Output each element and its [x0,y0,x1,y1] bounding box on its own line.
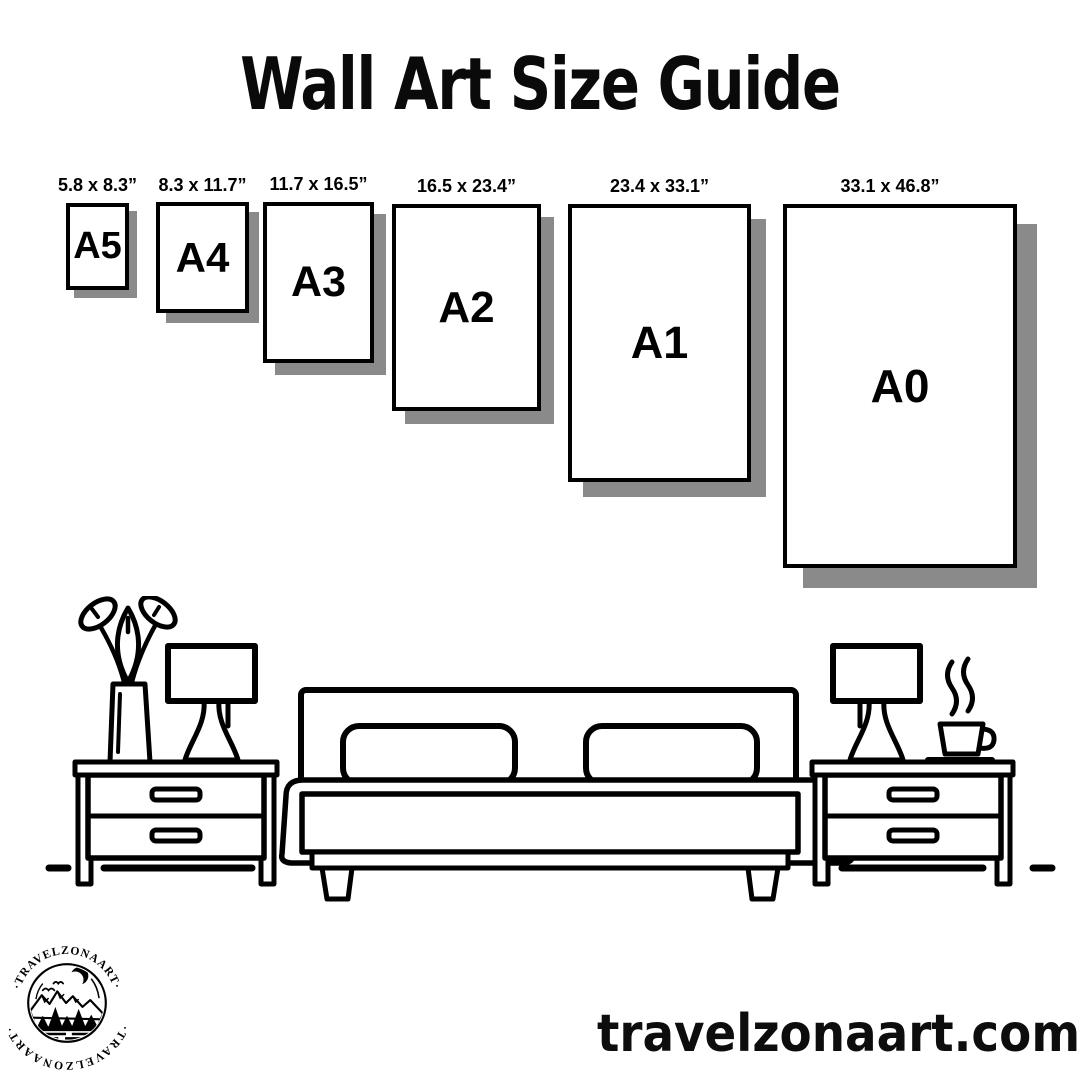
size-code-a5: A5 [73,225,122,268]
paper-size-box-a2: A2 [392,204,541,411]
paper-size-box-a3: A3 [263,202,374,363]
paper-size-box-a0: A0 [783,204,1017,568]
size-code-a4: A4 [176,234,230,282]
table-lamp-icon [168,646,255,760]
paper-size-box-a4: A4 [156,202,249,313]
page-title: Wall Art Size Guide [108,42,972,126]
wall-art-size-guide-infographic: Wall Art Size Guide 5.8 x 8.3” 8.3 x 11.… [0,0,1080,1080]
size-code-a1: A1 [631,317,689,369]
size-code-a0: A0 [871,359,930,413]
table-lamp-icon [833,646,920,760]
coffee-cup-icon [928,659,994,760]
size-code-a2: A2 [438,283,494,333]
size-dimensions-a0: 33.1 x 46.8” [728,176,1052,196]
brand-logo: ·TRAVELZONAART· ·TRAVELZONAART· [2,936,132,1070]
website-url: travelzonaart.com [597,1004,1047,1064]
bedroom-illustration [40,596,1060,908]
double-bed-icon [282,690,853,899]
paper-size-box-a5: A5 [66,203,129,290]
size-code-a3: A3 [291,258,346,307]
paper-size-box-a1: A1 [568,204,751,482]
flower-vase-icon [75,596,180,762]
